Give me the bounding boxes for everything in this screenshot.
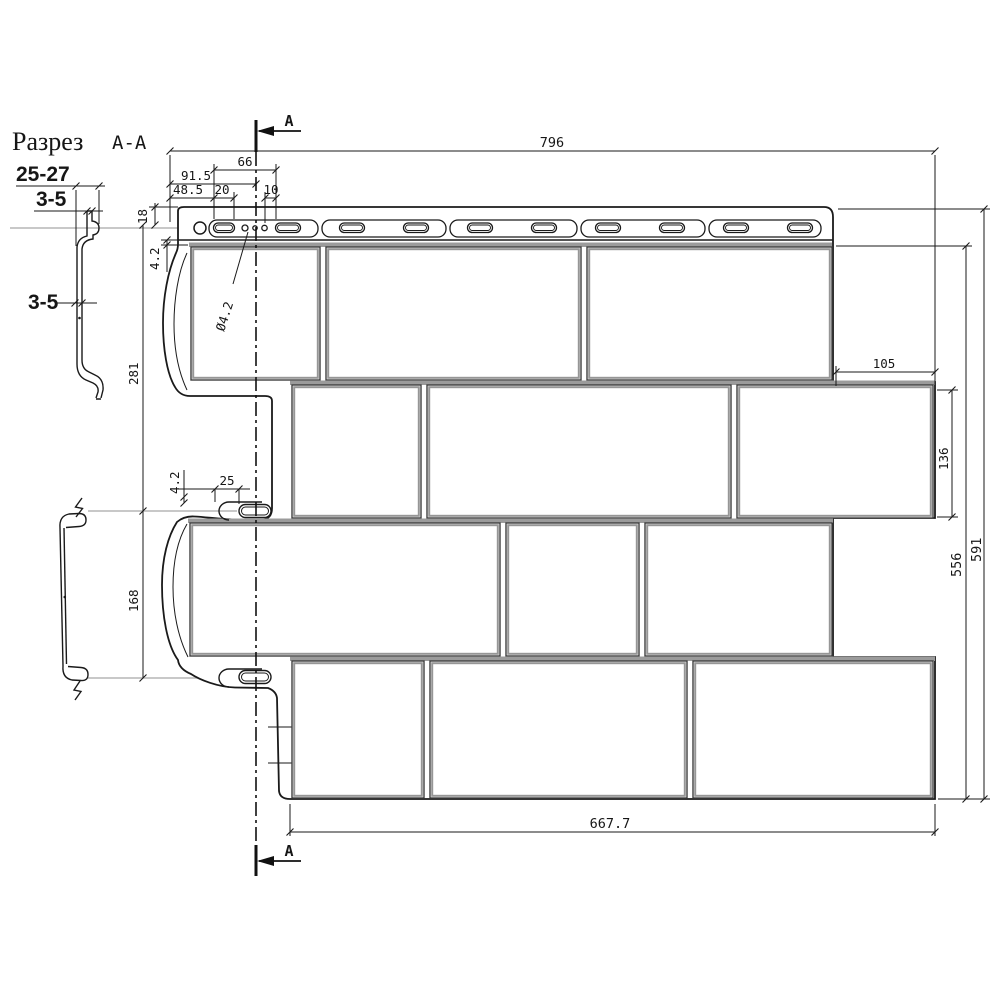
dim-slot-offset: 91.5: [181, 168, 211, 183]
cut-label-top: A: [284, 112, 293, 130]
round-nail-hole: [194, 222, 206, 234]
dim-lap-mid: 4.2: [167, 471, 182, 494]
dim-right-overhang: 105: [873, 356, 896, 371]
dim-profile-thickness-body: 3-5: [28, 291, 59, 314]
dim-row-pitch-lower: 168: [126, 589, 141, 612]
profile-dot: [64, 596, 67, 599]
brick-field: [188, 243, 935, 799]
brick: [190, 523, 500, 656]
brick: [737, 385, 933, 518]
dim-field-height: 556: [949, 553, 965, 577]
brick: [506, 523, 639, 656]
brick: [430, 661, 687, 798]
dim-lap-top: 4.2: [147, 247, 162, 270]
panel-view: [162, 207, 935, 799]
brick: [587, 247, 832, 380]
cut-arrow-bottom: [257, 856, 274, 866]
cut-label-bottom: A: [284, 842, 293, 860]
brick: [645, 523, 832, 656]
dim-profile-thickness-top: 3-5: [36, 188, 67, 211]
dim-slot-start: 48.5: [173, 182, 203, 197]
brick: [292, 661, 424, 798]
nail-slot: [404, 223, 429, 233]
section-title: Разрез: [12, 127, 83, 156]
dim-slot-len-mid: 25: [219, 473, 234, 488]
nail-slot: [340, 223, 365, 233]
dim-total-width: 796: [540, 135, 564, 151]
nail-slot: [468, 223, 493, 233]
profile-lower: [60, 498, 88, 700]
brick: [292, 385, 421, 518]
dim-bottom-width: 667.7: [590, 816, 631, 832]
nail-slot: [276, 223, 301, 233]
dim-slot-group: 66: [237, 154, 252, 169]
dim-row-pitch-upper: 281: [126, 362, 141, 385]
dim-brick-height: 136: [936, 447, 951, 470]
profile-dot: [78, 317, 81, 320]
nail-slot: [596, 223, 621, 233]
pilot-hole: [262, 225, 267, 230]
dim-profile-width: 25-27: [16, 163, 70, 186]
brick: [693, 661, 933, 798]
dim-slot-len-top: 20: [214, 182, 229, 197]
dim-top-edge: 18: [135, 209, 150, 224]
profile-upper: [77, 211, 103, 399]
oval-slot-mid: [239, 505, 271, 518]
pilot-hole: [242, 225, 248, 231]
facade-panel-drawing: Разрез А-А 25-27 3-5 3-5: [0, 0, 1000, 1000]
cut-arrow-top: [257, 126, 274, 136]
section-ref: А-А: [112, 132, 147, 154]
oval-slot-low: [239, 671, 271, 684]
blueprint-page: Разрез А-А 25-27 3-5 3-5: [0, 0, 1000, 1000]
nail-slot: [788, 223, 813, 233]
break-mark-bottom: [74, 681, 81, 700]
nail-slot: [724, 223, 749, 233]
brick: [326, 247, 581, 380]
section-view: Разрез А-А 25-27 3-5 3-5: [12, 127, 147, 700]
brick: [427, 385, 731, 518]
dim-hole-gap: 10: [263, 182, 278, 197]
dim-total-height: 591: [969, 538, 985, 562]
nail-slot: [532, 223, 557, 233]
nail-slot: [660, 223, 685, 233]
nail-slot: [214, 223, 235, 233]
